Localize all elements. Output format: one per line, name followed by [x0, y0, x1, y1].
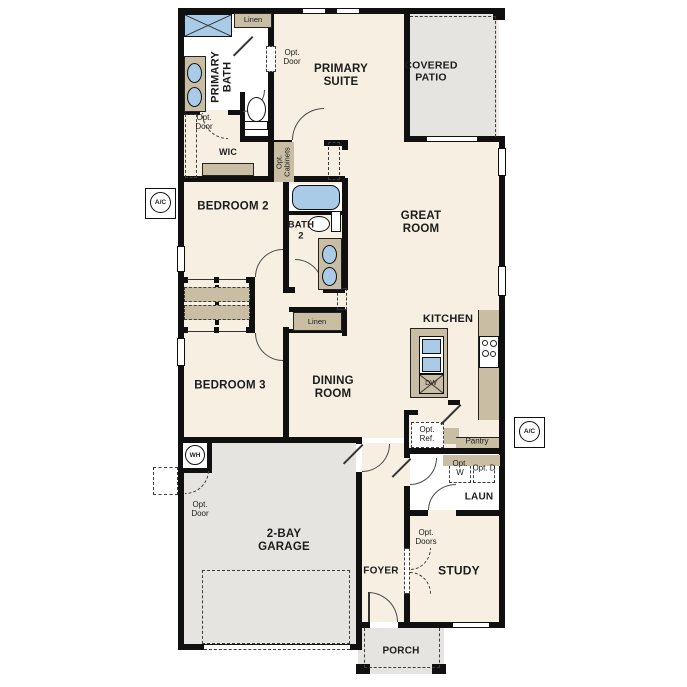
- opening-line: [187, 331, 214, 332]
- room-label-study: STUDY: [438, 564, 480, 577]
- room-label-dining-room: DINING ROOM: [304, 375, 362, 401]
- opening-line: [187, 279, 214, 280]
- ac-unit-right: A/C: [514, 417, 545, 448]
- wall-segment: [207, 443, 212, 470]
- wall-segment: [283, 327, 289, 443]
- burner: [482, 350, 489, 357]
- room-label-bedroom-3: BEDROOM 3: [194, 380, 265, 393]
- water-heater: WH: [183, 443, 207, 468]
- opt-cabinet-dashed: [337, 288, 347, 310]
- burner: [490, 340, 497, 347]
- label-dw: DW: [425, 380, 437, 388]
- window: [177, 246, 185, 272]
- room-label-foyer: FOYER: [363, 565, 398, 576]
- wall-segment: [499, 140, 505, 628]
- ac-circle: A/C: [150, 192, 171, 213]
- sink: [322, 245, 337, 264]
- wall-segment: [342, 140, 348, 150]
- burner: [490, 351, 496, 357]
- wall-segment: [404, 8, 505, 14]
- label-opt-door-garage: Opt. Door: [185, 501, 215, 519]
- label-opt-doors: Opt. Doors: [410, 529, 442, 547]
- label-opt-cabinets: Opt. Cabinets: [276, 142, 293, 182]
- label-linen-top: Linen: [244, 16, 262, 24]
- wall-segment: [456, 510, 503, 516]
- ac-unit-left: A/C: [145, 188, 176, 219]
- floor-plan: A/C A/C WH PRIMARY BATH Linen Opt. Door …: [0, 0, 687, 687]
- wall-segment: [404, 412, 409, 448]
- window: [498, 148, 506, 176]
- room-label-porch: PORCH: [382, 645, 419, 656]
- label-opt-door-wic: Opt. Door: [189, 114, 219, 132]
- wall-segment: [268, 70, 274, 140]
- window: [498, 266, 506, 296]
- room-label-laundry: LAUN: [465, 491, 494, 502]
- wall-segment: [246, 327, 255, 333]
- sink: [187, 63, 202, 83]
- room-label-great-room: GREAT ROOM: [390, 210, 452, 236]
- opt-door-opening: [266, 46, 276, 72]
- closet-shelf: [184, 305, 250, 320]
- garage-door-path: [202, 570, 350, 644]
- closet-shelf: [184, 287, 250, 302]
- label-opt-ref: Opt. Ref.: [413, 426, 441, 444]
- wall-segment: [178, 176, 345, 182]
- wall-segment: [404, 594, 410, 622]
- window: [177, 338, 185, 366]
- label-pantry: Pantry: [465, 438, 488, 447]
- garage-door-opening: [204, 644, 350, 650]
- opening-line: [219, 331, 246, 332]
- window: [336, 8, 360, 14]
- sink-basin: [422, 357, 441, 372]
- toilet-tank: [331, 211, 341, 232]
- wic-shelf: [202, 163, 254, 176]
- opt-cabinet-dashed: [328, 142, 340, 180]
- label-linen-mid: Linen: [308, 318, 326, 326]
- wh-circle: WH: [185, 445, 205, 465]
- window: [302, 8, 326, 14]
- wall-segment: [342, 178, 348, 290]
- opt-door-dashed: [153, 467, 178, 495]
- sink: [187, 87, 202, 107]
- bathtub: [292, 185, 340, 210]
- label-opt-w: Opt. W: [448, 460, 472, 478]
- ac-circle: A/C: [519, 421, 540, 442]
- wall-segment: [228, 110, 240, 115]
- opening-line: [219, 279, 246, 280]
- wall-segment: [408, 448, 500, 454]
- room-label-bath-2: BATH 2: [284, 220, 318, 241]
- burner: [482, 340, 488, 346]
- toilet-tank: [244, 121, 268, 130]
- wall-segment: [184, 277, 188, 283]
- wall-segment: [214, 277, 219, 283]
- wall-segment: [184, 327, 188, 333]
- wall-segment: [356, 472, 362, 650]
- door-leaf: [368, 592, 370, 622]
- sink: [322, 267, 337, 286]
- label-opt-d: Opt. D: [472, 465, 496, 474]
- wall-segment: [214, 327, 219, 333]
- room-label-covered-patio: COVERED PATIO: [399, 60, 463, 84]
- sink-basin: [422, 339, 441, 354]
- room-label-primary-bath: PRIMARY BATH: [210, 48, 235, 106]
- room-label-kitchen: KITCHEN: [423, 313, 473, 325]
- wall-segment: [283, 287, 295, 293]
- window: [452, 622, 490, 628]
- shower: [184, 14, 232, 37]
- room-label-garage: 2-BAY GARAGE: [249, 528, 319, 554]
- room-label-primary-suite: PRIMARY SUITE: [302, 63, 380, 89]
- room-label-bedroom-2: BEDROOM 2: [197, 201, 268, 214]
- room-label-wic: WIC: [219, 147, 237, 157]
- toilet-bowl: [247, 97, 266, 122]
